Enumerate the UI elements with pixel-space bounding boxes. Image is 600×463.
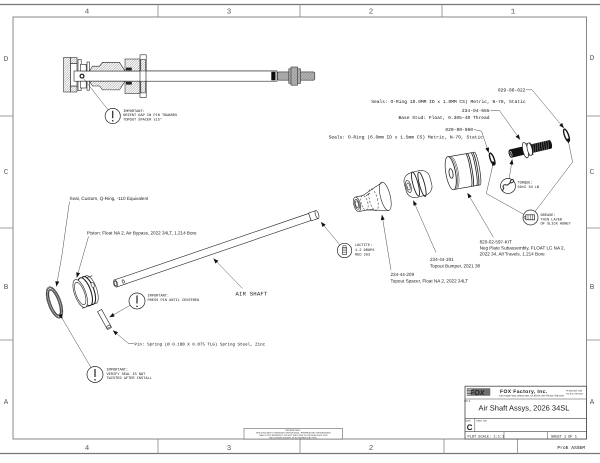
svg-text:50±5 IN LB: 50±5 IN LB	[518, 185, 540, 190]
svg-text:Base Stud: Float, 0.305-48 Thr: Base Stud: Float, 0.305-48 Thread	[399, 115, 490, 121]
svg-text:A: A	[590, 399, 595, 407]
svg-text:RED 263: RED 263	[355, 252, 370, 257]
svg-text:FOX Factory, Inc.: FOX Factory, Inc.	[500, 389, 548, 395]
svg-text:IMPORTANT:: IMPORTANT:	[107, 368, 129, 373]
svg-text:Piston: Float NA 2, Air Bypass: Piston: Float NA 2, Air Bypass, 2022 34L…	[87, 231, 197, 236]
svg-text:DWG. NO.: DWG. NO.	[476, 419, 487, 422]
svg-text:D: D	[590, 55, 595, 63]
svg-text:820-02-597-KIT: 820-02-597-KIT	[480, 240, 512, 245]
svg-text:THIN LAYER: THIN LAYER	[541, 217, 563, 222]
svg-text:VERIFY SEAL IS NOT: VERIFY SEAL IS NOT	[107, 372, 147, 377]
svg-text:TOPOUT SPACER ±15°: TOPOUT SPACER ±15°	[123, 117, 162, 122]
svg-text:TITLE: TITLE	[464, 400, 471, 403]
svg-text:Fax 831-768-9342: Fax 831-768-9342	[566, 393, 584, 396]
svg-text:2022 34, All Travels, 1.214 Bo: 2022 34, All Travels, 1.214 Bore	[480, 252, 546, 257]
svg-text:SHEET 1 OF 1: SHEET 1 OF 1	[551, 434, 577, 439]
svg-text:1: 1	[511, 8, 516, 16]
svg-text:Air Shaft Assys, 2026 34SL: Air Shaft Assys, 2026 34SL	[479, 404, 570, 413]
svg-text:TORQUE:: TORQUE:	[518, 180, 533, 185]
svg-text:A: A	[4, 399, 9, 407]
svg-text:FOX: FOX	[470, 390, 486, 397]
svg-text:3: 3	[227, 7, 232, 16]
svg-text:C: C	[4, 168, 9, 177]
svg-text:234-44-209: 234-44-209	[391, 272, 415, 277]
svg-text:130 Hanger Way, Watsonville, C: 130 Hanger Way, Watsonville, CA 95076 US…	[499, 394, 565, 397]
svg-text:LOCTITE:: LOCTITE:	[355, 243, 372, 248]
svg-text:Topout Bumper, 2021 38: Topout Bumper, 2021 38	[430, 263, 481, 268]
svg-text:IMPORTANT:: IMPORTANT:	[148, 294, 170, 299]
svg-text:4: 4	[85, 445, 90, 453]
svg-text:4: 4	[85, 8, 90, 16]
svg-text:B: B	[4, 284, 9, 292]
svg-text:GREASE:: GREASE:	[541, 213, 556, 218]
svg-text:234-04-655: 234-04-655	[462, 108, 490, 114]
svg-text:Seals: O-Ring 18.0MM ID x 1.8M: Seals: O-Ring 18.0MM ID x 1.8MM CS) Metr…	[371, 99, 526, 105]
svg-text:PRESS PIN UNTIL CENTERED: PRESS PIN UNTIL CENTERED	[148, 298, 200, 303]
svg-text:B: B	[590, 284, 595, 292]
svg-text:Ph 800-369-7469: Ph 800-369-7469	[566, 390, 583, 393]
svg-text:THE OTHERS EXCEPT AS AUTHORIZE: THE OTHERS EXCEPT AS AUTHORIZED BY FOX.	[269, 436, 318, 439]
svg-text:C: C	[467, 423, 473, 432]
svg-text:ProE ASSEM: ProE ASSEM	[557, 445, 585, 451]
svg-text:Seal, Custom, Q-Ring, -110 Equ: Seal, Custom, Q-Ring, -110 Equivalent	[70, 196, 150, 201]
svg-text:D: D	[4, 56, 9, 64]
svg-text:Seals: O-Ring (6.0mm ID x 1.5m: Seals: O-Ring (6.0mm ID x 1.5mm CS) Metr…	[329, 135, 484, 141]
svg-text:C: C	[590, 168, 595, 177]
svg-text:234-44-191: 234-44-191	[430, 257, 454, 262]
svg-text:AIR SHAFT: AIR SHAFT	[236, 291, 268, 298]
svg-text:2: 2	[369, 444, 374, 453]
svg-text:029-88-060: 029-88-060	[445, 127, 473, 133]
svg-text:1-2 DROPS: 1-2 DROPS	[355, 248, 374, 253]
svg-text:Neg Plate Subassembly, FLOAT L: Neg Plate Subassembly, FLOAT LC NA 2,	[480, 246, 565, 251]
svg-text:029-88-022: 029-88-022	[498, 87, 526, 93]
svg-text:PLOT SCALE: 1:1:1: PLOT SCALE: 1:1:1	[468, 434, 505, 439]
svg-text:Topout Spacer, Float NA 2, 202: Topout Spacer, Float NA 2, 2022 34LT	[391, 279, 469, 284]
svg-text:TWISTED AFTER INSTALL: TWISTED AFTER INSTALL	[107, 376, 152, 381]
svg-text:3: 3	[227, 444, 232, 453]
svg-text:2: 2	[369, 7, 374, 16]
svg-text:OF SLICK HONEY: OF SLICK HONEY	[541, 222, 572, 227]
